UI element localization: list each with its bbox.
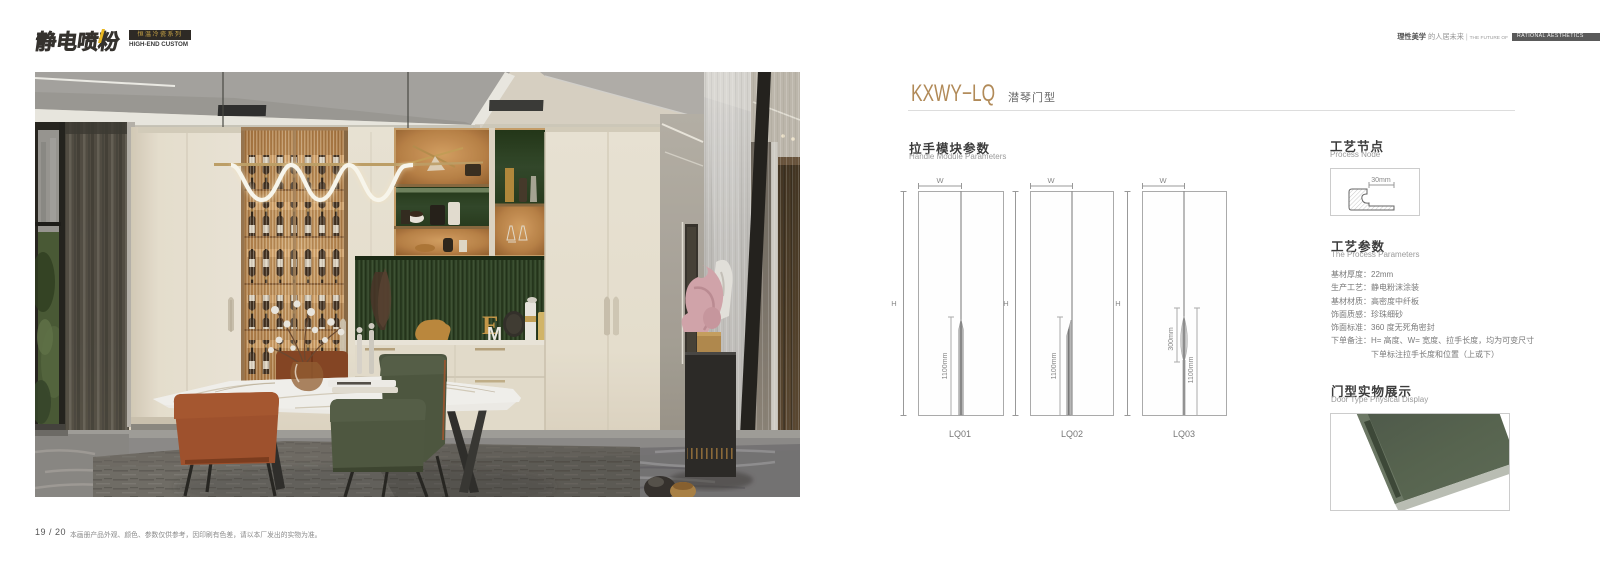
svg-text:H: H [1115, 299, 1120, 308]
svg-text:30mm: 30mm [1371, 177, 1391, 184]
svg-text:W: W [1159, 176, 1167, 185]
svg-text:H: H [1003, 299, 1008, 308]
svg-text:H: H [891, 299, 896, 308]
svg-text:W: W [1047, 176, 1055, 185]
svg-text:1100mm: 1100mm [1051, 352, 1058, 379]
svg-text:1100mm: 1100mm [1188, 356, 1195, 383]
svg-text:1100mm: 1100mm [942, 352, 949, 379]
svg-text:W: W [936, 176, 944, 185]
svg-text:300mm: 300mm [1168, 327, 1175, 351]
